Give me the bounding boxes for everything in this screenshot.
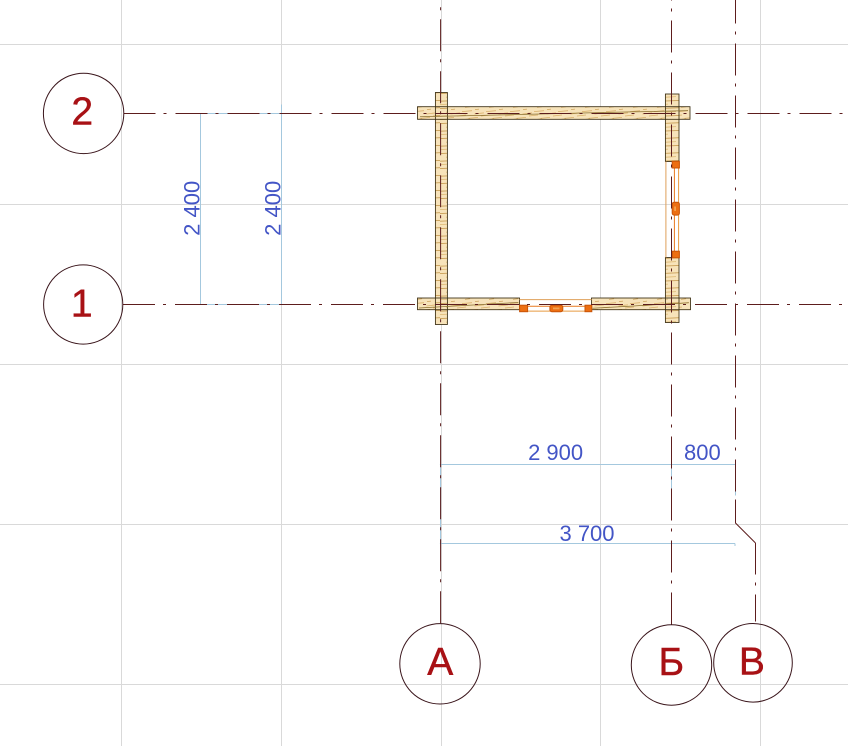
svg-text:3 700: 3 700 <box>559 521 614 546</box>
svg-text:2 900: 2 900 <box>528 440 583 465</box>
svg-text:800: 800 <box>684 440 721 465</box>
svg-text:1: 1 <box>71 282 93 325</box>
svg-text:В: В <box>739 641 765 684</box>
svg-text:А: А <box>427 641 453 684</box>
svg-text:2 400: 2 400 <box>261 181 286 236</box>
svg-text:Б: Б <box>659 641 685 684</box>
svg-text:2: 2 <box>71 90 93 133</box>
svg-text:2 400: 2 400 <box>180 181 205 236</box>
